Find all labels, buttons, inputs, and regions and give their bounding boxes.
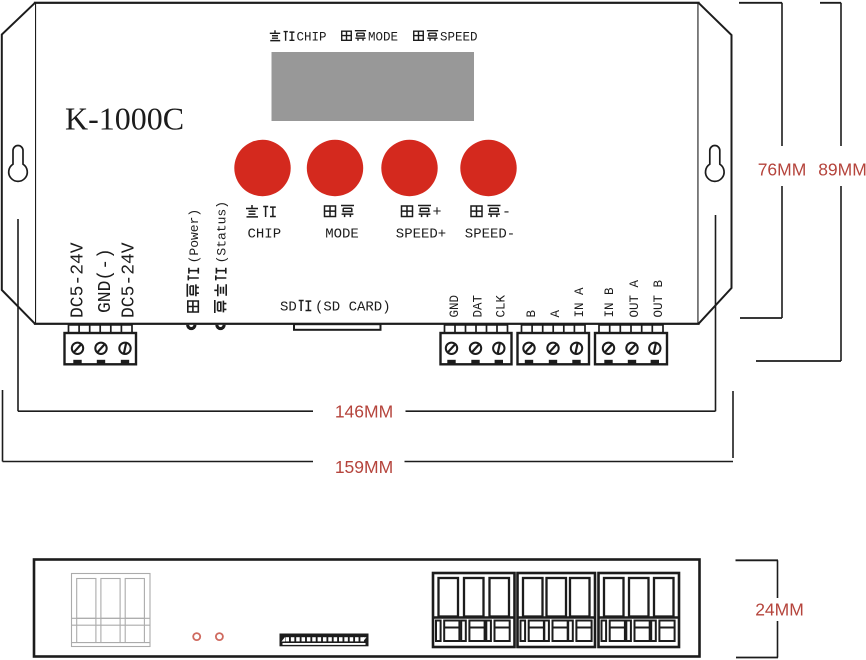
svg-text:SD: SD [280, 300, 297, 316]
svg-text:SPEED-: SPEED- [465, 227, 515, 243]
svg-text:MODE: MODE [368, 31, 398, 45]
svg-text:K-1000C: K-1000C [65, 101, 184, 137]
svg-text:CLK: CLK [494, 294, 508, 317]
svg-text:89MM: 89MM [818, 160, 866, 180]
svg-text:DAT: DAT [471, 294, 485, 317]
svg-text:CHIP: CHIP [248, 227, 282, 243]
svg-text:SPEED+: SPEED+ [396, 227, 446, 243]
svg-text:GND: GND [448, 295, 462, 318]
svg-text:MODE: MODE [325, 227, 359, 243]
svg-text:(Status): (Status) [215, 201, 230, 263]
svg-text:OUT B: OUT B [652, 279, 666, 317]
svg-text:76MM: 76MM [758, 160, 807, 180]
svg-text:(Power): (Power) [187, 209, 202, 264]
svg-text:GND(-): GND(-) [96, 248, 116, 313]
svg-text:DC5-24V: DC5-24V [69, 242, 89, 318]
svg-text:146MM: 146MM [335, 402, 393, 422]
svg-text:DC5-24V: DC5-24V [120, 242, 140, 318]
svg-text:IN B: IN B [603, 287, 617, 318]
svg-text:A: A [549, 310, 563, 318]
svg-text:B: B [525, 310, 539, 318]
svg-text:IN A: IN A [573, 287, 587, 318]
svg-text:24MM: 24MM [755, 600, 804, 620]
svg-text:(SD CARD): (SD CARD) [315, 300, 391, 316]
svg-text:-: - [502, 204, 511, 221]
svg-text:159MM: 159MM [335, 457, 393, 477]
svg-text:+: + [433, 204, 442, 221]
svg-text:SPEED: SPEED [440, 31, 478, 45]
svg-text:CHIP: CHIP [297, 31, 327, 45]
svg-text:OUT A: OUT A [628, 279, 642, 317]
